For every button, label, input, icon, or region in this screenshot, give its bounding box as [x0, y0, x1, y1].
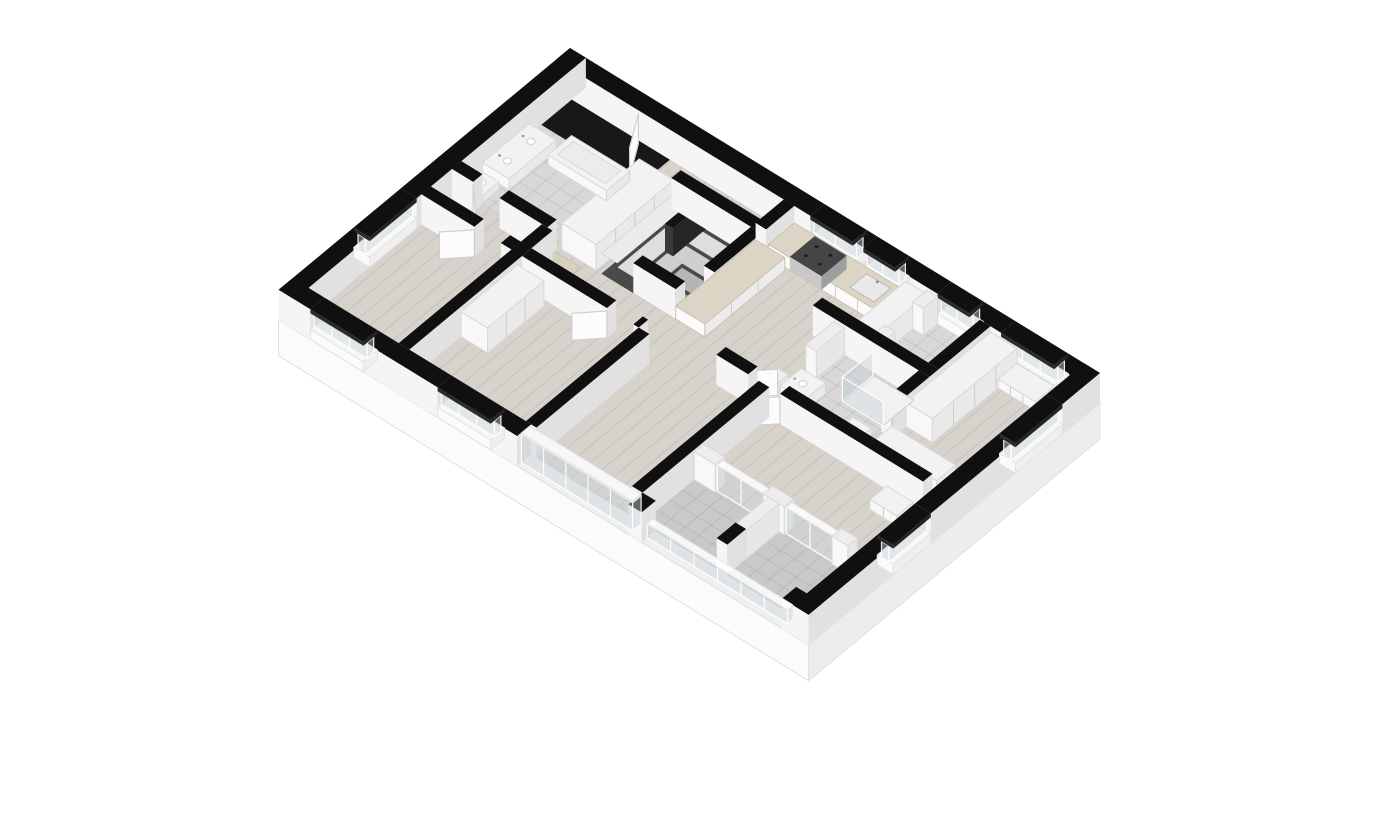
room-a-open-door: [439, 230, 474, 259]
bath1-faucet-2: [498, 154, 501, 156]
bath2-basin: [799, 381, 807, 387]
bath1-faucet-1: [522, 135, 525, 137]
stove-burner-2: [828, 253, 833, 257]
bath1-basin-1: [527, 138, 535, 144]
kitchen-faucet: [876, 281, 879, 283]
floorplan-3d-render: [0, 0, 1400, 820]
stove-burner-3: [803, 254, 808, 258]
stove-burner-4: [817, 262, 822, 266]
bath2-faucet: [793, 377, 796, 379]
bath1-basin-2: [504, 158, 512, 164]
stove-burner-1: [814, 245, 819, 249]
floorplan-canvas: [0, 0, 1400, 820]
room-b-open-door: [572, 311, 607, 340]
